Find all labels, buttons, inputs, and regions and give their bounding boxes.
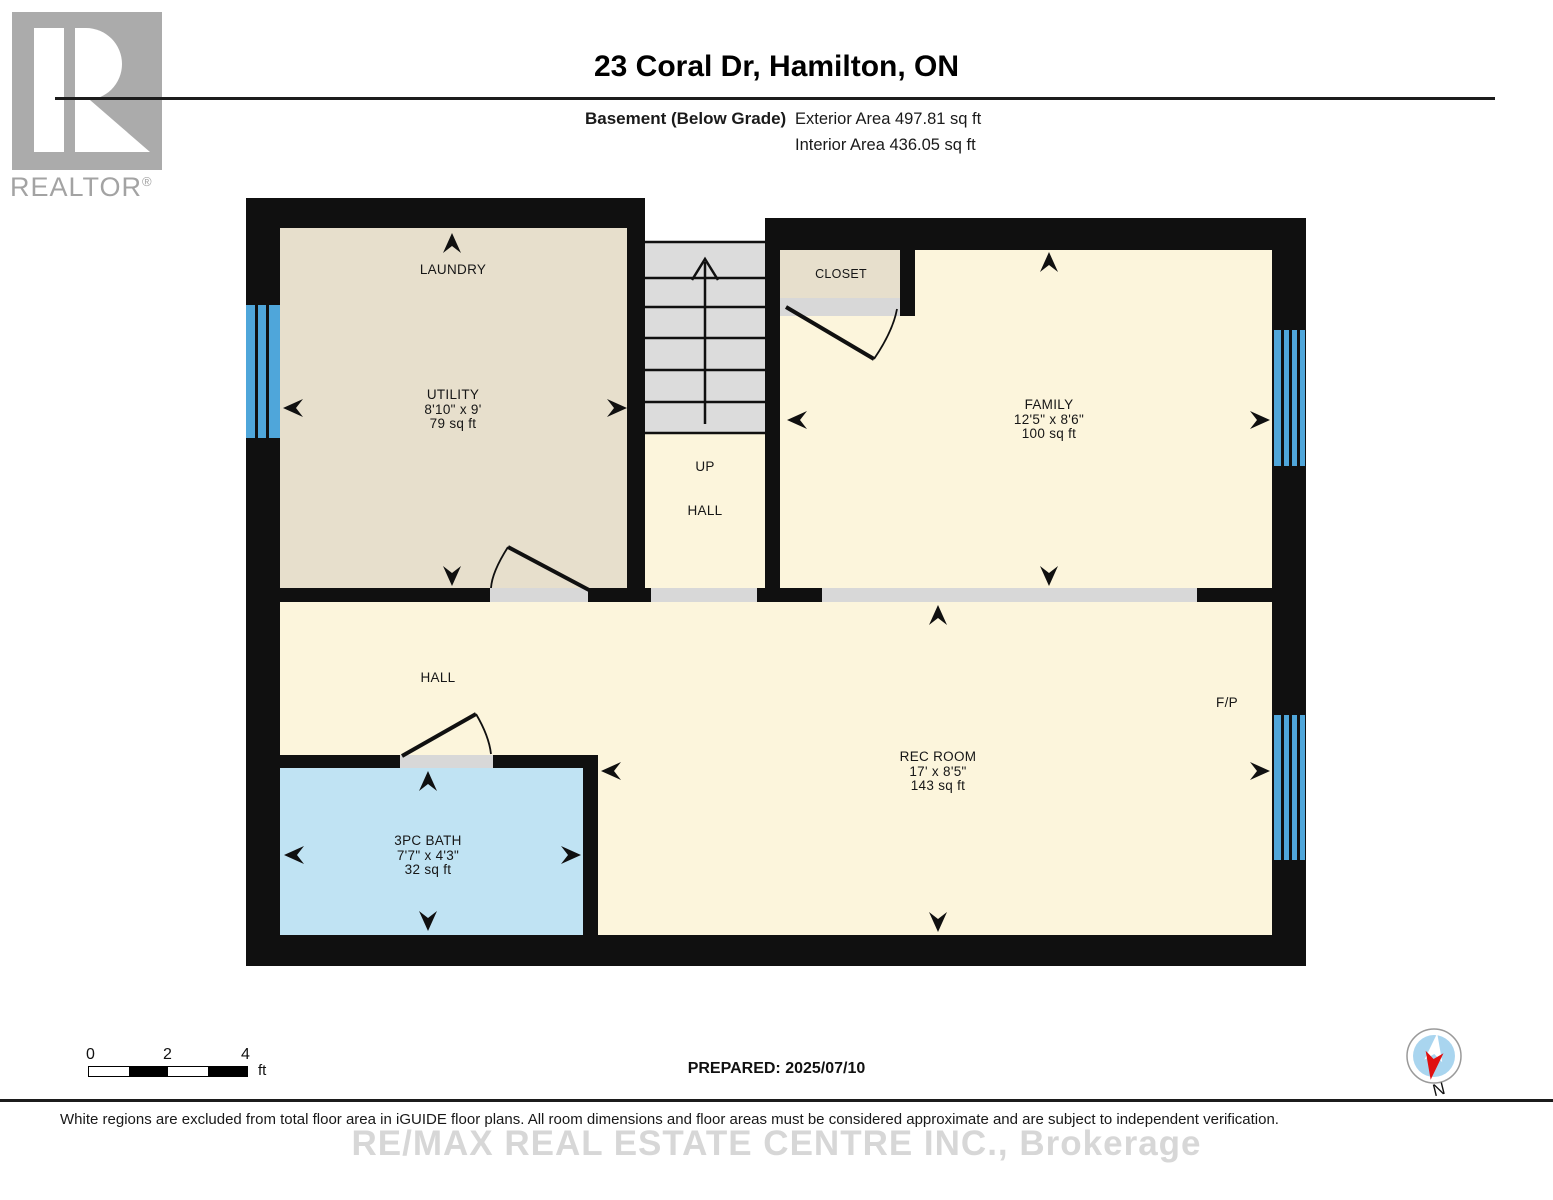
laundry-window [246, 302, 280, 441]
family-rec-opening [822, 588, 1197, 602]
closet-name: CLOSET [815, 267, 867, 281]
family-area: 100 sq ft [949, 427, 1149, 442]
stair-hall-text: HALL [688, 503, 723, 518]
window-mullion [1297, 715, 1300, 860]
prepared-date: PREPARED: 2025/07/10 [0, 1060, 1553, 1078]
stairs [645, 241, 765, 434]
wall-bath-top-left [280, 755, 400, 768]
floor-label: Basement (Below Grade) [585, 109, 786, 129]
bath-label: 3PC BATH 7'7" x 4'3" 32 sq ft [328, 834, 528, 878]
registered-mark: ® [142, 174, 153, 189]
family-name: FAMILY [949, 398, 1149, 413]
rec-room-dims: 17' x 8'5" [838, 765, 1038, 780]
wall-mid-d [1197, 588, 1272, 602]
family-label: FAMILY 12'5" x 8'6" 100 sq ft [949, 398, 1149, 442]
window-mullion [1289, 715, 1292, 860]
utility-dims: 8'10" x 9' [353, 403, 553, 418]
rec-window [1274, 712, 1305, 863]
bath-door-opening [400, 755, 493, 768]
wall-top-family [765, 218, 1306, 250]
bath-dims: 7'7" x 4'3" [328, 849, 528, 864]
window-mullion [255, 305, 258, 438]
wall-mid-c [757, 588, 822, 602]
fireplace-label: F/P [1177, 696, 1277, 711]
wall-stairs-family [765, 250, 780, 602]
brokerage-watermark: RE/MAX REAL ESTATE CENTRE INC., Brokerag… [0, 1124, 1553, 1164]
window-mullion [1297, 330, 1300, 466]
closet-door-opening [780, 298, 900, 316]
window-mullion [266, 305, 269, 438]
realtor-word: REALTOR [10, 172, 142, 202]
rec-room-label: REC ROOM 17' x 8'5" 143 sq ft [838, 750, 1038, 794]
window-mullion [1281, 330, 1284, 466]
wall-mid-a [246, 588, 490, 602]
title-divider [55, 97, 1495, 100]
wall-bath-right [583, 755, 598, 935]
fireplace-text: F/P [1216, 695, 1238, 710]
wall-laundry-stairs [627, 228, 645, 602]
window-mullion [1281, 715, 1284, 860]
page-title: 23 Coral Dr, Hamilton, ON [0, 50, 1553, 84]
hall-label: HALL [338, 671, 538, 686]
rec-room-area: 143 sq ft [838, 779, 1038, 794]
up-text: UP [695, 459, 714, 474]
hall-text: HALL [421, 670, 456, 685]
closet-label: CLOSET [781, 267, 901, 282]
up-label: UP [655, 460, 755, 475]
bath-area: 32 sq ft [328, 863, 528, 878]
rec-room-name: REC ROOM [838, 750, 1038, 765]
laundry-label: LAUNDRY [353, 263, 553, 278]
realtor-logo-r [12, 12, 162, 170]
exterior-area-label: Exterior Area 497.81 sq ft [795, 110, 981, 129]
utility-name: UTILITY [353, 388, 553, 403]
realtor-logo-word: REALTOR® [10, 172, 180, 203]
family-window [1274, 327, 1305, 469]
utility-area: 79 sq ft [353, 417, 553, 432]
floorplan-page: REALTOR® 23 Coral Dr, Hamilton, ON Basem… [0, 0, 1553, 1200]
laundry-label-text: LAUNDRY [420, 262, 486, 277]
window-mullion [1289, 330, 1292, 466]
stair-hall-label: HALL [655, 504, 755, 519]
interior-area-label: Interior Area 436.05 sq ft [795, 136, 976, 155]
bath-name: 3PC BATH [328, 834, 528, 849]
utility-label: UTILITY 8'10" x 9' 79 sq ft [353, 388, 553, 432]
wall-closet-right [900, 250, 915, 316]
wall-bottom [246, 935, 1306, 966]
realtor-logo-icon [12, 12, 162, 170]
laundry-door-opening [490, 588, 588, 602]
family-dims: 12'5" x 8'6" [949, 413, 1149, 428]
footer-divider [0, 1099, 1553, 1102]
wall-mid-b [588, 588, 651, 602]
hall-passage-opening [651, 588, 757, 602]
wall-top-laundry [246, 198, 645, 228]
